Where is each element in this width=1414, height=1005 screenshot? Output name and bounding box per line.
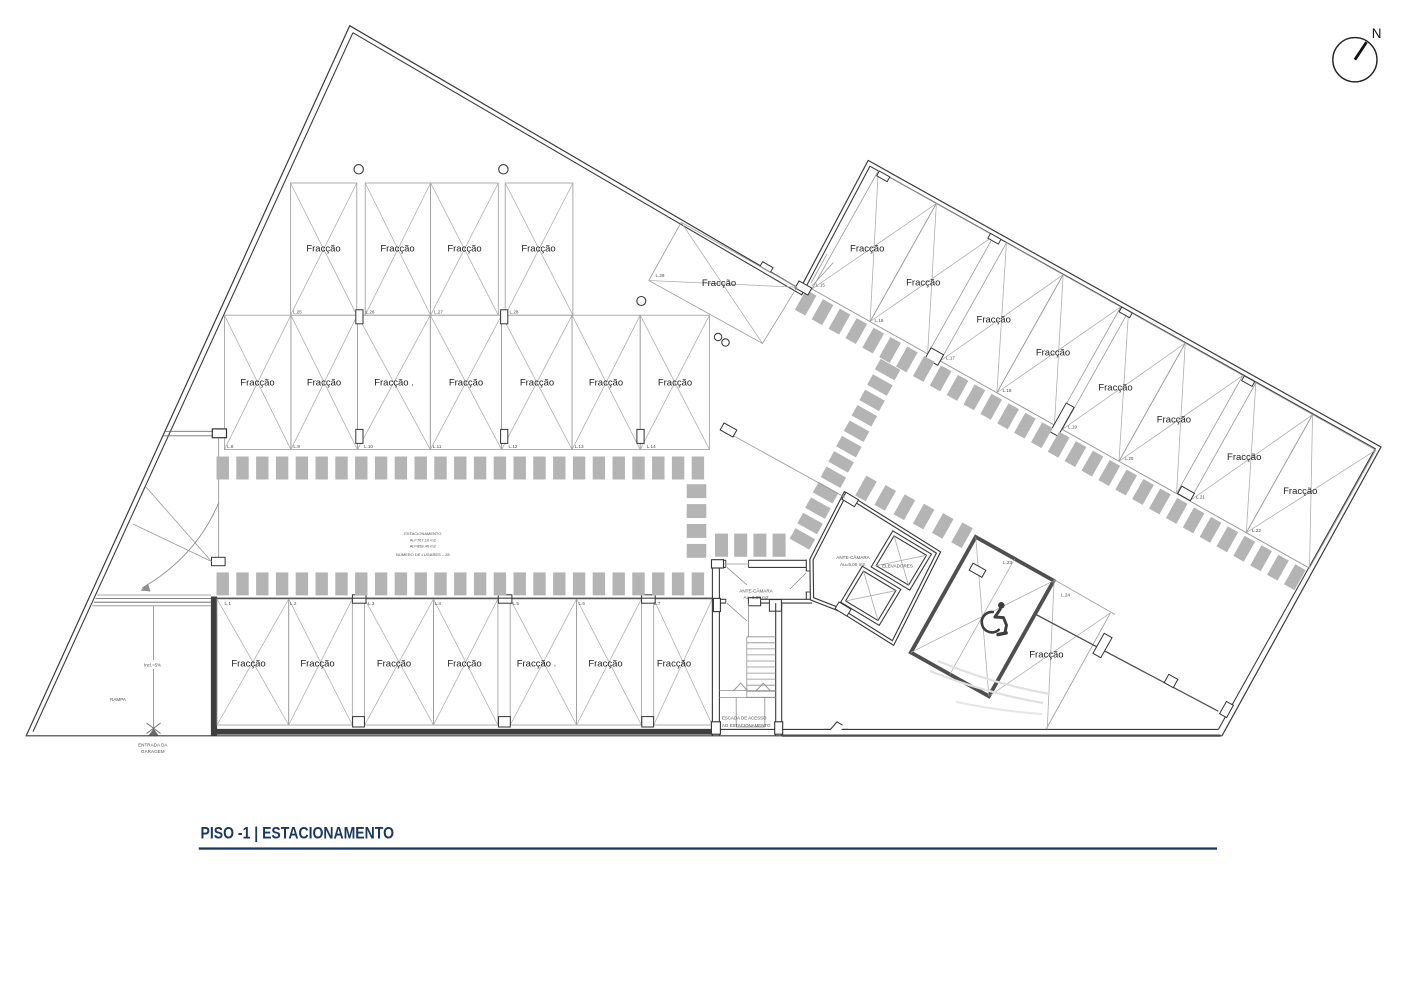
svg-text:Fracção .: Fracção . [374,378,414,389]
svg-text:L.5: L.5 [513,601,520,606]
svg-text:Fracção: Fracção [300,659,334,670]
svg-text:Fracção: Fracção [1227,452,1261,463]
svg-text:N: N [1372,26,1382,41]
svg-text:ESTACIONAMENTO: ESTACIONAMENTO [404,531,441,536]
svg-text:Fracção: Fracção [447,244,481,255]
svg-text:L.29: L.29 [656,273,665,278]
svg-text:PISO -1 | ESTACIONAMENTO: PISO -1 | ESTACIONAMENTO [201,825,395,843]
svg-text:L.24: L.24 [1061,593,1070,598]
svg-text:Fracção: Fracção [521,244,555,255]
svg-text:Fracção: Fracção [240,378,274,389]
svg-text:Au=5,00 m2: Au=5,00 m2 [840,562,865,567]
svg-text:Fracção: Fracção [589,378,623,389]
svg-text:L.2: L.2 [290,601,297,606]
svg-text:ELEVADORES: ELEVADORES [882,564,913,569]
svg-text:L.11: L.11 [433,444,442,449]
svg-text:Fracção .: Fracção . [517,659,557,670]
svg-text:L.12: L.12 [509,444,518,449]
svg-text:Fracção: Fracção [588,659,622,670]
svg-text:Fracção: Fracção [977,314,1011,325]
svg-text:NÚMERO DE LUGARES – 28: NÚMERO DE LUGARES – 28 [396,552,450,557]
svg-text:L.28: L.28 [510,310,519,315]
svg-text:L.17: L.17 [946,356,955,361]
svg-text:Ab=858.40 m2: Ab=858.40 m2 [410,544,437,549]
svg-text:L.16: L.16 [875,318,884,323]
svg-text:Fracção: Fracção [231,659,265,670]
svg-text:Fracção: Fracção [906,278,940,289]
svg-text:L.13: L.13 [575,444,584,449]
svg-text:L.15: L.15 [816,283,825,288]
svg-text:L.3: L.3 [368,601,375,606]
svg-text:Au=767.10 m2: Au=767.10 m2 [410,537,437,542]
svg-text:Fracção: Fracção [306,244,340,255]
svg-text:Fracção: Fracção [447,659,481,670]
svg-text:L.7: L.7 [654,601,661,606]
svg-text:L.1: L.1 [225,601,232,606]
svg-text:L.14: L.14 [647,444,656,449]
svg-text:ENTRADA DA: ENTRADA DA [138,743,168,748]
svg-text:L.27: L.27 [434,310,443,315]
svg-text:Fracção: Fracção [1036,347,1070,358]
svg-text:Fracção: Fracção [702,278,736,289]
svg-text:Fracção: Fracção [449,378,483,389]
svg-text:L.21: L.21 [1196,495,1205,500]
svg-text:Fracção: Fracção [380,244,414,255]
svg-text:L.18: L.18 [1003,388,1012,393]
svg-text:L.4: L.4 [435,601,442,606]
svg-text:GARAGEM: GARAGEM [141,749,165,754]
svg-text:Fracção: Fracção [520,378,554,389]
svg-text:Incl.=5%: Incl.=5% [144,663,161,668]
svg-text:L.26: L.26 [366,310,375,315]
svg-text:Fracção: Fracção [657,659,691,670]
svg-text:L.25: L.25 [293,310,302,315]
svg-text:L.10: L.10 [364,444,373,449]
svg-text:ANTE-CÂMARA: ANTE-CÂMARA [739,588,773,594]
svg-text:RAMPA: RAMPA [110,697,127,702]
svg-text:L.6: L.6 [579,601,586,606]
svg-text:AO ESTACIONAMENTO: AO ESTACIONAMENTO [722,723,771,728]
svg-text:Fracção: Fracção [1283,486,1317,497]
svg-text:L.23: L.23 [1003,560,1012,565]
svg-text:ANTE-CÂMARA: ANTE-CÂMARA [836,554,870,560]
svg-text:Fracção: Fracção [1098,382,1132,393]
svg-text:L.19: L.19 [1068,425,1077,430]
svg-text:Fracção: Fracção [658,378,692,389]
svg-text:L.22: L.22 [1252,528,1261,533]
svg-text:Au=3,80 m2: Au=3,80 m2 [744,595,769,600]
svg-text:Fracção: Fracção [307,378,341,389]
svg-text:Fracção: Fracção [377,659,411,670]
svg-text:Fracção: Fracção [1157,415,1191,426]
svg-text:ESCADA DE ACESSO: ESCADA DE ACESSO [722,716,767,721]
svg-text:Fracção: Fracção [850,244,884,255]
svg-text:L.20: L.20 [1125,456,1134,461]
svg-text:Fracção: Fracção [1029,650,1063,661]
svg-text:L.9: L.9 [293,444,300,449]
svg-text:L.8: L.8 [227,444,234,449]
